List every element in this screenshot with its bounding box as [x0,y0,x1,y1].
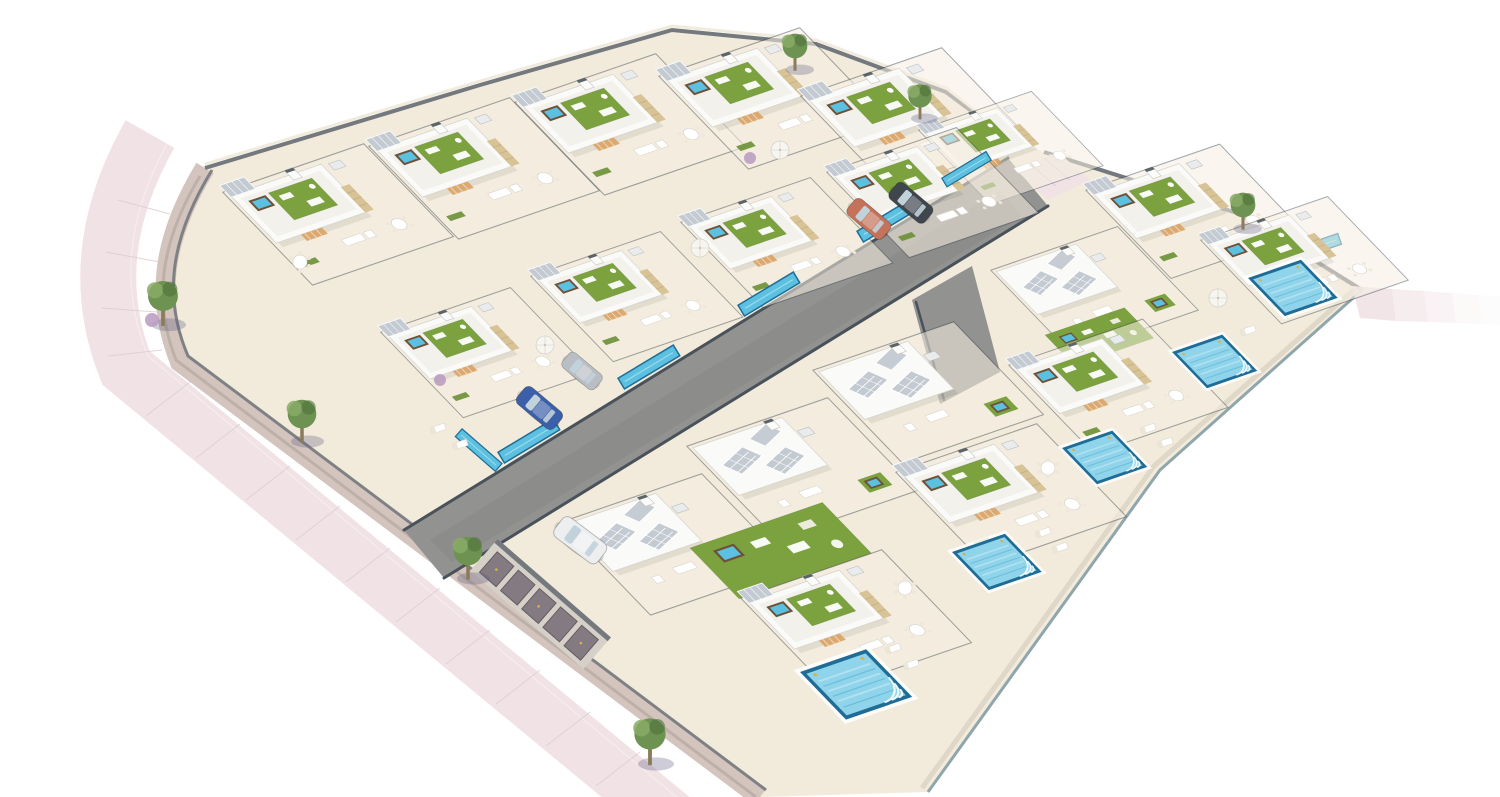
lilac-shrub [434,374,446,386]
render-canvas [0,0,1500,797]
lilac-shrub [145,313,159,327]
lilac-shrub [744,152,756,164]
site-plan-svg [0,0,1500,797]
